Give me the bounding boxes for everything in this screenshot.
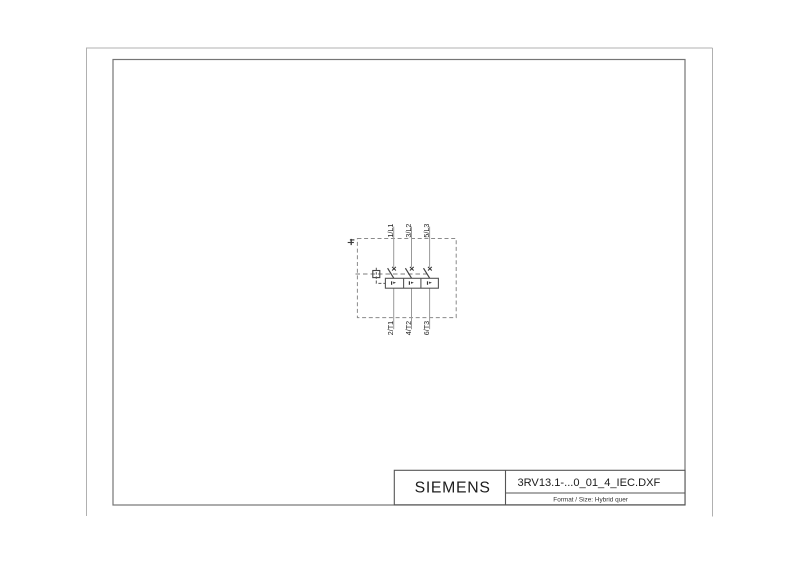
svg-text:Format / Size: Hybrid quer: Format / Size: Hybrid quer <box>553 496 628 503</box>
svg-text:4/T2: 4/T2 <box>404 321 413 335</box>
svg-text:6/T3: 6/T3 <box>422 321 431 335</box>
svg-text:1/L1: 1/L1 <box>386 224 395 238</box>
svg-text:5/L3: 5/L3 <box>422 224 431 238</box>
svg-text:2/T1: 2/T1 <box>386 321 395 335</box>
svg-text:3RV13.1-...0_01_4_IEC.DXF: 3RV13.1-...0_01_4_IEC.DXF <box>517 477 660 489</box>
svg-text:3/L2: 3/L2 <box>404 224 413 238</box>
svg-text:SIEMENS: SIEMENS <box>415 480 491 497</box>
